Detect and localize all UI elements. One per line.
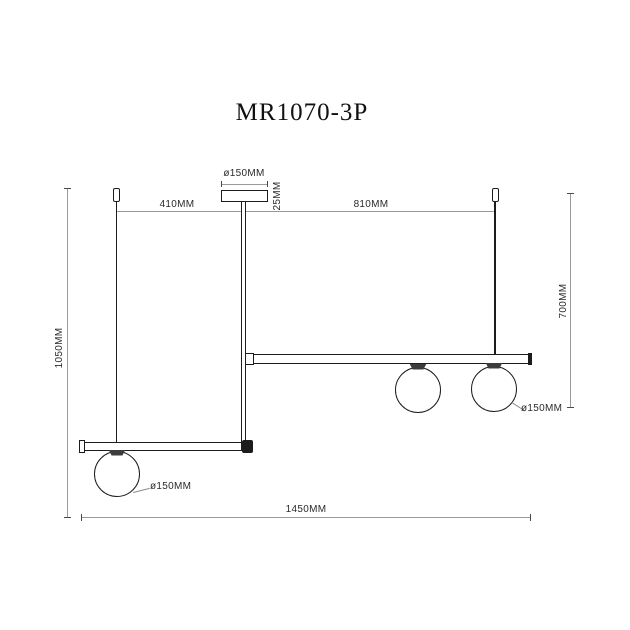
glass-globe-upper-2 <box>471 366 517 412</box>
suspension-wire-right <box>494 202 496 354</box>
total-length-dimension-line <box>81 517 531 518</box>
span-right-label: 810MM <box>341 199 401 211</box>
upper-bar-rod-connector <box>245 353 254 365</box>
ceiling-mount-right <box>492 188 499 202</box>
leader-line-lower-globe <box>133 488 150 493</box>
drop-left-dimension-line <box>67 188 68 518</box>
drop-right-tick-top <box>567 193 574 194</box>
canopy-dimension-line <box>221 184 268 185</box>
drop-left-tick-bottom <box>64 517 71 518</box>
span-left-label: 410MM <box>147 199 207 211</box>
lower-globe-diameter-label: ø150MM <box>150 481 191 493</box>
ceiling-mount-left <box>113 188 120 202</box>
suspension-wire-left <box>116 202 118 442</box>
ceiling-canopy <box>221 190 268 202</box>
drop-left-label: 1050MM <box>54 318 66 378</box>
drop-right-dimension-line <box>570 193 571 408</box>
glass-globe-lower <box>94 451 140 497</box>
drop-left-tick-top <box>64 188 71 189</box>
center-stem-rod <box>241 202 247 442</box>
canopy-dim-tick-left <box>221 181 222 187</box>
canopy-dim-tick-right <box>267 181 268 187</box>
lower-bar <box>84 442 242 451</box>
product-title: MR1070-3P <box>0 99 604 127</box>
technical-drawing-canvas: MR1070-3P ø150MM 25MM 410MM 810MM ø150MM… <box>0 0 630 630</box>
canopy-diameter-label: ø150MM <box>214 168 274 180</box>
span-dimension-line <box>116 211 495 212</box>
total-length-tick-left <box>81 514 82 521</box>
lower-bar-rod-fitting <box>242 440 253 453</box>
upper-bar-end-cap <box>528 353 532 365</box>
lower-bar-end-cap <box>79 440 85 453</box>
total-length-label: 1450MM <box>276 504 336 516</box>
glass-globe-upper-1 <box>395 367 441 413</box>
canopy-height-label: 25MM <box>272 166 284 226</box>
total-length-tick-right <box>530 514 531 521</box>
drop-right-label: 700MM <box>558 271 570 331</box>
upper-globe-diameter-label: ø150MM <box>521 403 562 415</box>
drop-right-tick-bottom <box>567 407 574 408</box>
